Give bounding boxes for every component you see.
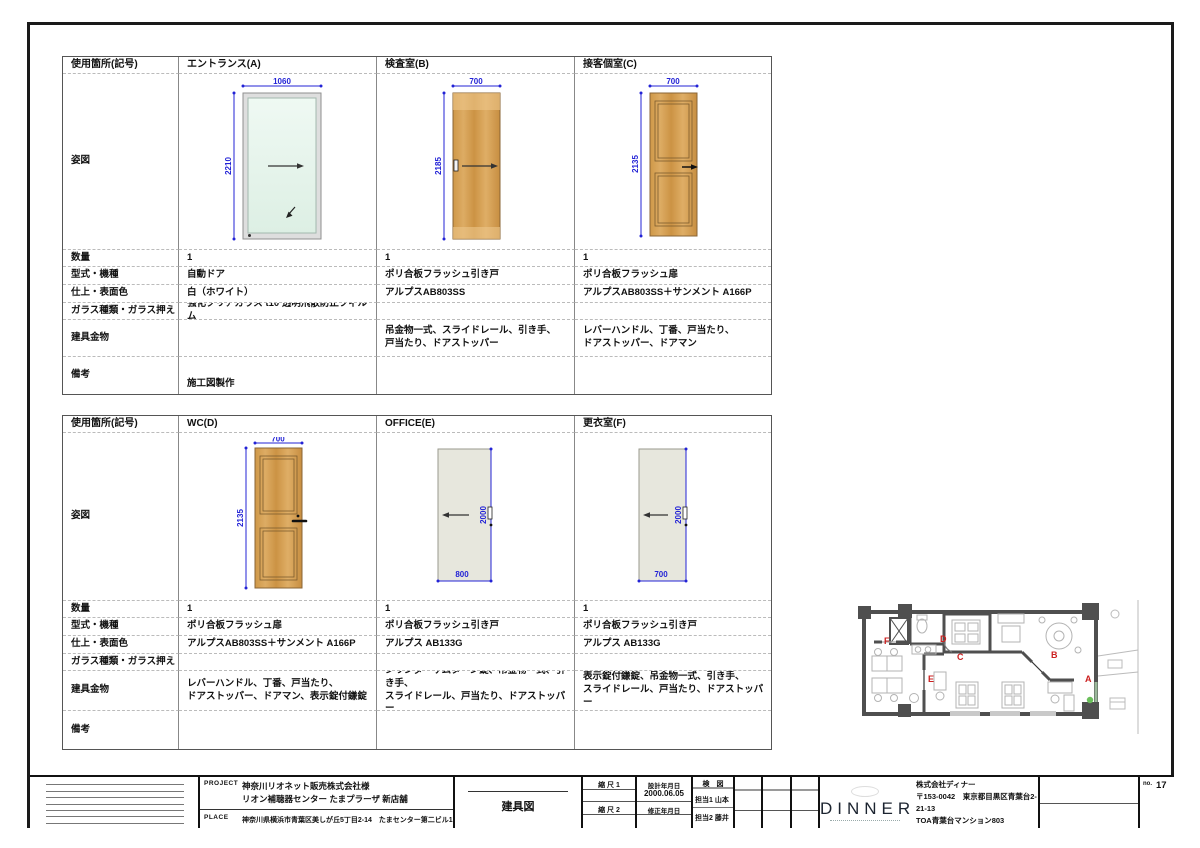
door-f-type: ポリ合板フラッシュ引き戸 xyxy=(575,618,771,636)
door-a-height-dim: 2210 xyxy=(224,156,233,174)
revise-date-label: 修正年月日 xyxy=(637,802,691,815)
door-a-finish: 白（ホワイト） xyxy=(179,285,377,303)
door-d-glass xyxy=(179,654,377,671)
project-label: PROJECT xyxy=(204,780,238,787)
col-header-location: 使用箇所(記号) xyxy=(63,57,179,74)
door-a-drawing: 1060 2210 xyxy=(198,78,358,246)
col-header-door-b: 検査室(B) xyxy=(377,57,575,74)
check-label: 検 図 xyxy=(693,777,733,789)
door-d-qty: 1 xyxy=(179,601,377,618)
plan-label-e: E xyxy=(928,674,934,684)
door-b-remarks xyxy=(377,357,575,394)
door-e-type: ポリ合板フラッシュ引き戸 xyxy=(377,618,575,636)
project-section: PROJECT 神奈川リオネット販売株式会社様 リオン補聴器センター たまプラー… xyxy=(200,777,455,828)
row-label-type: 型式・機種 xyxy=(63,267,179,285)
row-label-remarks-2: 備考 xyxy=(63,711,179,749)
door-b-glass xyxy=(377,303,575,320)
door-a-qty: 1 xyxy=(179,250,377,267)
door-f-glass xyxy=(575,654,771,671)
door-a-elevation: 1060 2210 xyxy=(179,74,377,250)
door-f-remarks xyxy=(575,711,771,749)
plan-label-f: F xyxy=(884,636,890,646)
door-e-hardware: シリンダーサムターン錠、吊金物一式、引き手、 スライドレール、戸当たり、ドアスト… xyxy=(377,671,575,711)
door-c-hardware: レバーハンドル、丁番、戸当たり、 ドアストッパー、ドアマン xyxy=(575,320,771,357)
door-e-height-dim: 2000 xyxy=(479,505,488,523)
door-e-elevation: 2000 800 xyxy=(377,433,575,601)
door-b-width-dim: 700 xyxy=(469,78,483,86)
row-label-qty: 数量 xyxy=(63,250,179,267)
door-b-type: ポリ合板フラッシュ引き戸 xyxy=(377,267,575,285)
marker-dot xyxy=(1087,697,1093,703)
door-e-remarks xyxy=(377,711,575,749)
row-label-hardware: 建具金物 xyxy=(63,320,179,357)
scale2-label: 縮 尺 2 xyxy=(583,802,635,815)
row-label-elevation: 姿図 xyxy=(63,74,179,250)
door-c-glass xyxy=(575,303,771,320)
plan-label-a: A xyxy=(1085,674,1092,684)
company-addr2: TOA青葉台マンション803 xyxy=(916,815,1038,827)
door-b-hardware: 吊金物一式、スライドレール、引き手、 戸当たり、ドアストッパー xyxy=(377,320,575,357)
door-d-width-dim: 700 xyxy=(271,437,285,444)
project-name-line1: 神奈川リオネット販売株式会社様 xyxy=(242,780,408,793)
door-schedule-table-2: 使用箇所(記号) WC(D) OFFICE(E) 更衣室(F) 姿図 700 2… xyxy=(62,415,772,750)
col-header-location-2: 使用箇所(記号) xyxy=(63,416,179,433)
door-d-type: ポリ合板フラッシュ扉 xyxy=(179,618,377,636)
door-c-elevation: 700 2135 xyxy=(575,74,771,250)
door-c-width-dim: 700 xyxy=(666,78,680,86)
door-c-qty: 1 xyxy=(575,250,771,267)
empty-cell-1 xyxy=(735,777,763,828)
door-f-finish: アルプス AB133G xyxy=(575,636,771,654)
design-date-label: 設計年月日 xyxy=(637,777,691,789)
door-a-width-dim: 1060 xyxy=(273,78,291,86)
door-a-glass: 強化クリアガラス t10 透明飛散防止フィルム xyxy=(179,303,377,320)
key-floor-plan: A B C D E F xyxy=(852,598,1144,736)
row-label-hardware-2: 建具金物 xyxy=(63,671,179,711)
door-a-remarks: 施工図製作 xyxy=(179,357,377,394)
staff1: 担当1 山本 xyxy=(693,789,733,808)
door-d-finish: アルプスAB803SS＋サンメント A166P xyxy=(179,636,377,654)
door-b-elevation: 700 2185 xyxy=(377,74,575,250)
col-header-door-a: エントランス(A) xyxy=(179,57,377,74)
door-f-height-dim: 2000 xyxy=(674,505,683,523)
plan-label-c: C xyxy=(957,652,964,662)
door-a-hardware xyxy=(179,320,377,357)
door-e-glass xyxy=(377,654,575,671)
sheet-no-value: 17 xyxy=(1156,780,1167,791)
check-cell: 検 図 担当1 山本 担当2 藤井 xyxy=(693,777,735,828)
date-cell: 設計年月日 2000.06.05 修正年月日 xyxy=(637,777,693,828)
revision-box xyxy=(30,777,200,828)
row-label-glass: ガラス種類・ガラス押え xyxy=(63,303,179,320)
title-block: PROJECT 神奈川リオネット販売株式会社様 リオン補聴器センター たまプラー… xyxy=(30,775,1174,828)
col-header-door-d: WC(D) xyxy=(179,416,377,433)
row-label-elevation-2: 姿図 xyxy=(63,433,179,601)
door-c-drawing: 700 2135 xyxy=(593,78,753,246)
row-label-qty-2: 数量 xyxy=(63,601,179,618)
scale1-label: 縮 尺 1 xyxy=(583,777,635,790)
company-logo-mark-icon xyxy=(851,786,879,797)
door-e-finish: アルプス AB133G xyxy=(377,636,575,654)
sheet-no-label: no. xyxy=(1143,781,1152,787)
door-f-width-dim: 700 xyxy=(654,570,668,579)
empty-cell-3 xyxy=(792,777,820,828)
plan-label-d: D xyxy=(940,634,947,644)
door-d-hardware: レバーハンドル、丁番、戸当たり、 ドアストッパー、ドアマン、表示錠付鎌錠 xyxy=(179,671,377,711)
col-header-door-c: 接客個室(C) xyxy=(575,57,771,74)
empty-cell-4 xyxy=(1040,777,1140,828)
door-b-height-dim: 2185 xyxy=(434,156,443,174)
door-c-type: ポリ合板フラッシュ扉 xyxy=(575,267,771,285)
place-value: 神奈川県横浜市青葉区美しが丘5丁目2-14 たまセンター第二ビル1階 xyxy=(242,815,453,825)
scale-cell: 縮 尺 1 縮 尺 2 xyxy=(583,777,637,828)
door-f-qty: 1 xyxy=(575,601,771,618)
door-f-hardware: 表示錠付鎌錠、吊金物一式、引き手、 スライドレール、戸当たり、ドアストッパー xyxy=(575,671,771,711)
door-d-remarks xyxy=(179,711,377,749)
door-c-height-dim: 2135 xyxy=(631,154,640,172)
project-name-line2: リオン補聴器センター たまプラーザ 新店舗 xyxy=(242,793,408,806)
row-label-remarks: 備考 xyxy=(63,357,179,394)
door-a-type: 自動ドア xyxy=(179,267,377,285)
row-label-finish: 仕上・表面色 xyxy=(63,285,179,303)
drawing-title: 建具図 xyxy=(502,798,535,814)
door-e-width-dim: 800 xyxy=(455,570,469,579)
door-e-qty: 1 xyxy=(377,601,575,618)
door-schedule-table-1: 使用箇所(記号) エントランス(A) 検査室(B) 接客個室(C) 姿図 106… xyxy=(62,56,772,395)
door-d-drawing: 700 2135 xyxy=(198,437,358,597)
door-e-drawing: 2000 800 xyxy=(396,441,556,593)
door-f-drawing: 2000 700 xyxy=(593,441,753,593)
company-logo: DINNER xyxy=(820,784,910,821)
door-c-finish: アルプスAB803SS＋サンメント A166P xyxy=(575,285,771,303)
col-header-door-e: OFFICE(E) xyxy=(377,416,575,433)
door-b-qty: 1 xyxy=(377,250,575,267)
door-d-height-dim: 2135 xyxy=(236,508,245,526)
door-f-elevation: 2000 700 xyxy=(575,433,771,601)
design-date: 2000.06.05 xyxy=(637,789,691,802)
empty-cell-2 xyxy=(763,777,792,828)
drawing-title-cell: 建具図 xyxy=(455,777,583,828)
row-label-type-2: 型式・機種 xyxy=(63,618,179,636)
row-label-finish-2: 仕上・表面色 xyxy=(63,636,179,654)
company-addr1: 〒153-0042 東京都目黒区青葉台2-21-13 xyxy=(916,791,1038,815)
door-b-drawing: 700 2185 xyxy=(396,78,556,246)
staff2: 担当2 藤井 xyxy=(693,808,733,826)
sheet-number-cell: no. 17 xyxy=(1140,777,1174,828)
col-header-door-f: 更衣室(F) xyxy=(575,416,771,433)
door-b-finish: アルプスAB803SS xyxy=(377,285,575,303)
row-label-glass-2: ガラス種類・ガラス押え xyxy=(63,654,179,671)
place-label: PLACE xyxy=(204,814,229,821)
company-block: DINNER 株式会社ディナー 〒153-0042 東京都目黒区青葉台2-21-… xyxy=(820,777,1040,828)
door-d-elevation: 700 2135 xyxy=(179,433,377,601)
plan-label-b: B xyxy=(1051,650,1058,660)
door-c-remarks xyxy=(575,357,771,394)
company-name: 株式会社ディナー xyxy=(916,779,1038,791)
